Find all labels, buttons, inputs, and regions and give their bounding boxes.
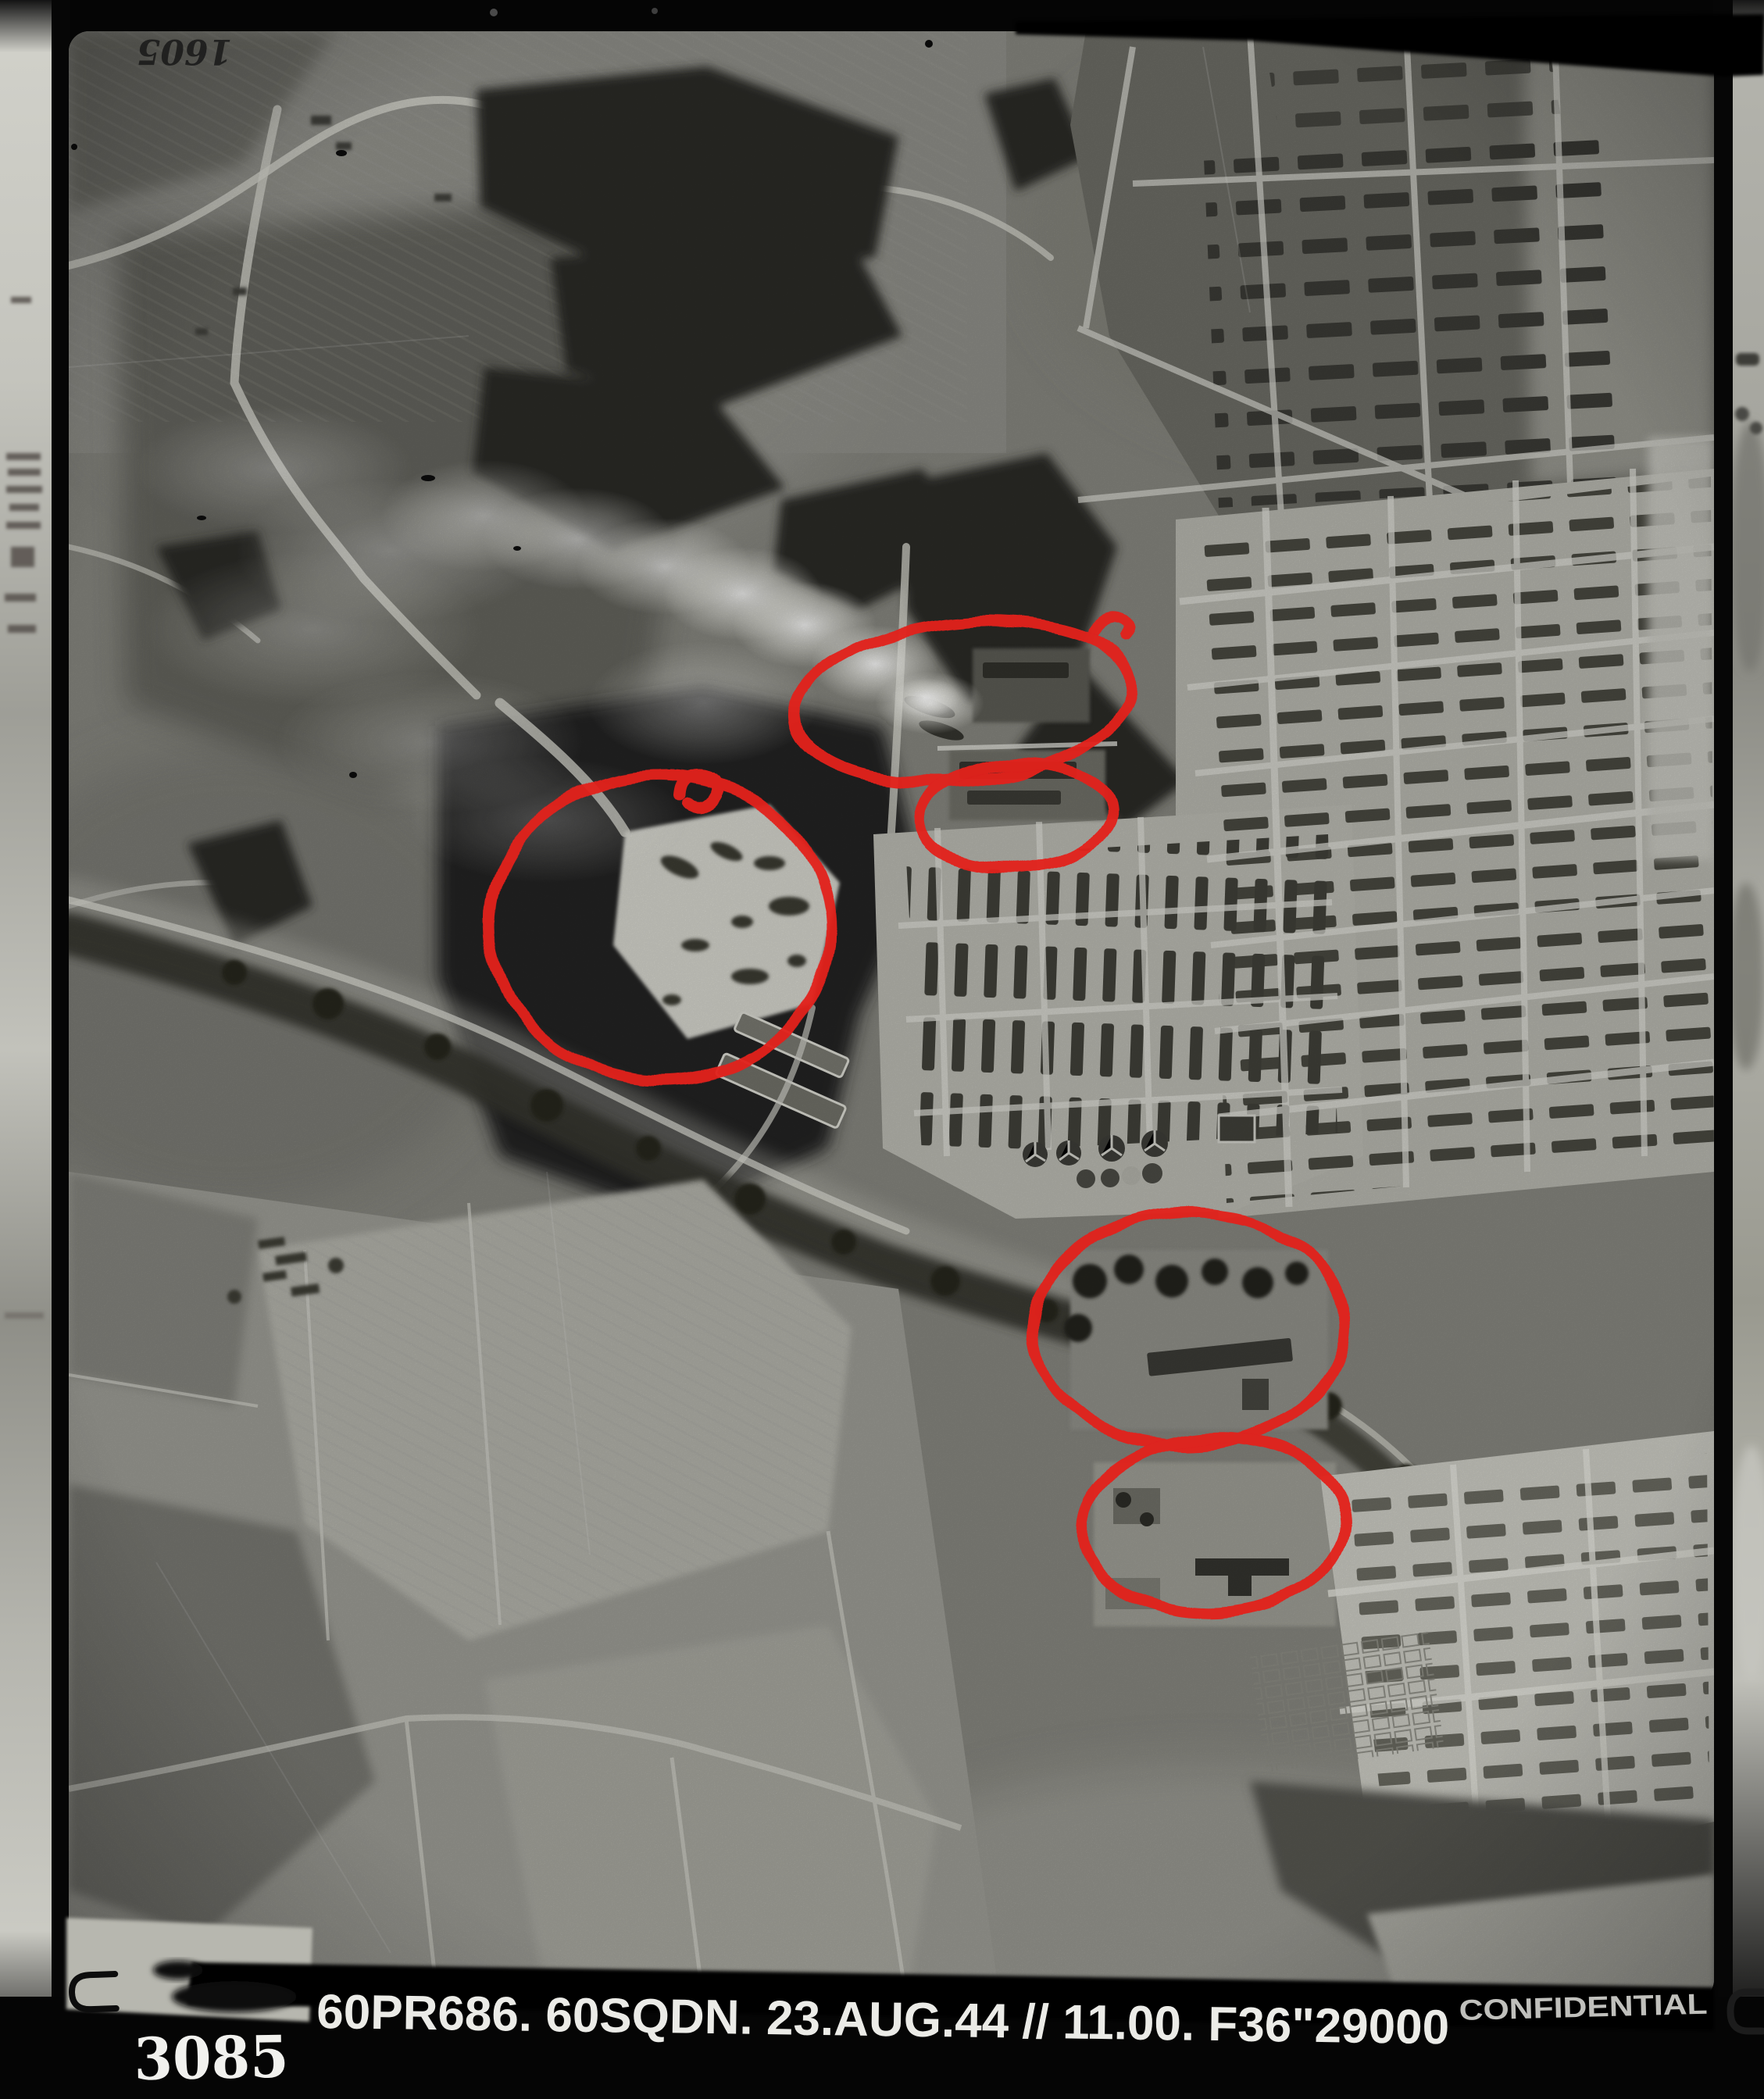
classification-text: CONFIDENTIAL — [1459, 1988, 1708, 2026]
ink-smudge — [172, 1981, 297, 2012]
adjacent-frame-right — [1727, 0, 1764, 2099]
top-edge-mark — [652, 8, 658, 14]
film-divider-right — [1713, 0, 1733, 2099]
film-divider-left — [52, 0, 70, 2099]
adjacent-frame-left — [0, 0, 53, 2099]
frame-number: 3085 — [134, 2024, 289, 2094]
film-grain — [69, 31, 1714, 2000]
aerial-photo-svg: 1605 60PR686. 60SQDN. 23.AUG.44 // 11.00… — [0, 0, 1764, 2099]
handwritten-number: 1605 — [137, 31, 232, 71]
reconnaissance-photo — [0, 16, 1714, 2099]
film-sheet: 1605 60PR686. 60SQDN. 23.AUG.44 // 11.00… — [0, 0, 1764, 2099]
ink-smudge — [153, 1961, 203, 1979]
top-edge-mark — [490, 9, 498, 16]
